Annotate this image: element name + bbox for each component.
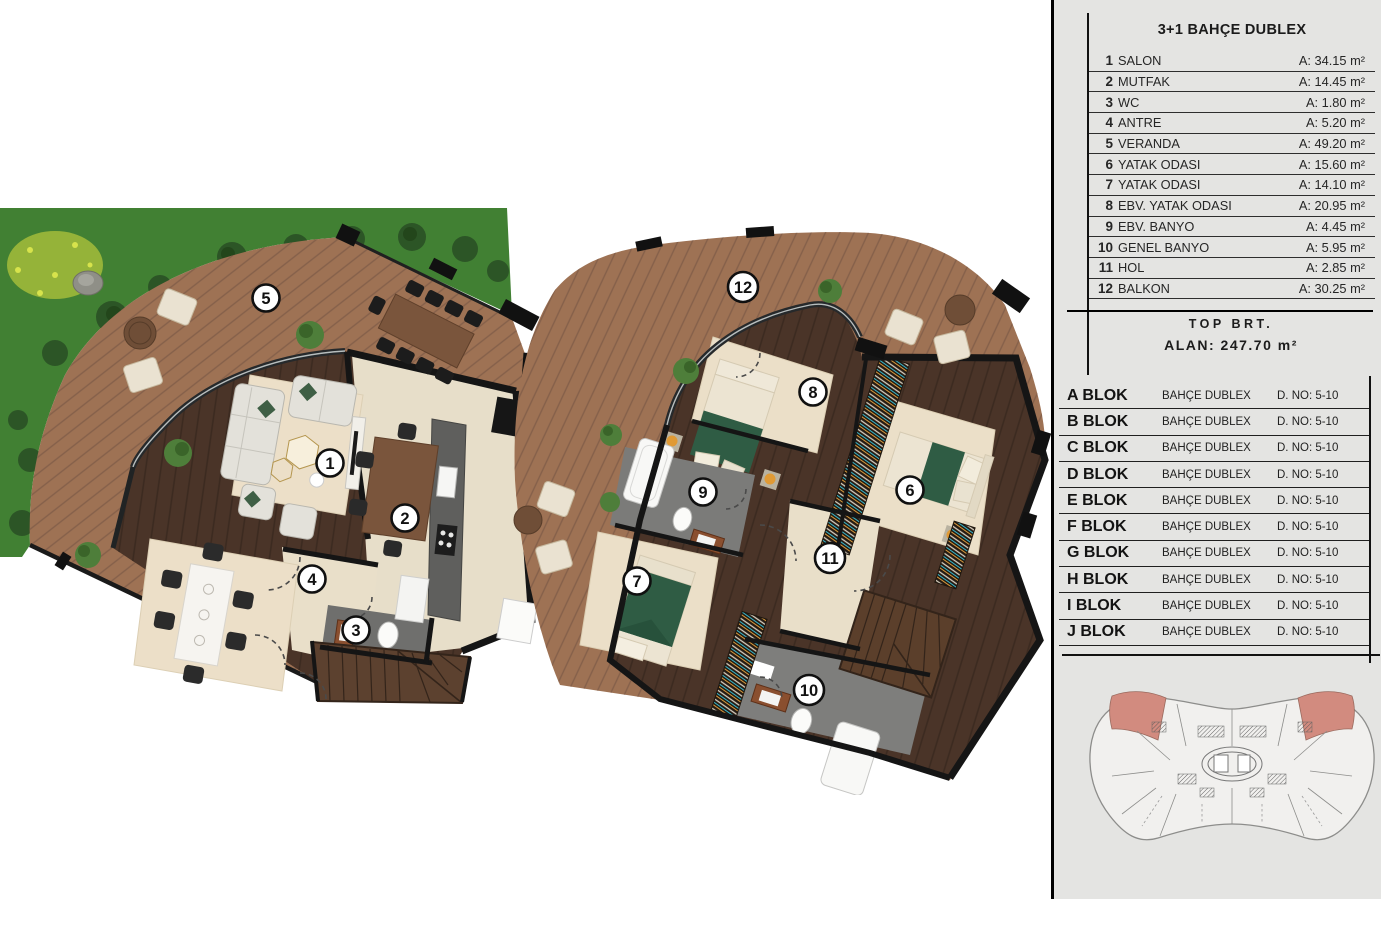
room-area: A: 5.20 m² (1306, 115, 1375, 130)
plan-title: 3+1 BAHÇE DUBLEX (1089, 13, 1375, 51)
legend-room-row: 8EBV. YATAK ODASIA: 20.95 m² (1089, 196, 1375, 217)
svg-text:7: 7 (632, 573, 641, 591)
block-row: A BLOKBAHÇE DUBLEXD. NO: 5-10 (1059, 383, 1369, 409)
site-plan-svg (1082, 676, 1381, 876)
block-row: F BLOKBAHÇE DUBLEXD. NO: 5-10 (1059, 514, 1369, 540)
svg-text:2: 2 (400, 510, 409, 528)
legend-room-row: 11HOLA: 2.85 m² (1089, 258, 1375, 279)
legend-room-row: 12BALKONA: 30.25 m² (1089, 279, 1375, 300)
info-panel: 3+1 BAHÇE DUBLEX 1SALONA: 34.15 m²2MUTFA… (1051, 0, 1381, 899)
svg-text:3: 3 (351, 622, 360, 640)
round-table (514, 506, 542, 534)
block-name: D BLOK (1067, 466, 1162, 484)
block-door-numbers: D. NO: 5-10 (1277, 600, 1338, 612)
room-number: 7 (1089, 177, 1113, 192)
block-door-numbers: D. NO: 5-10 (1277, 469, 1338, 481)
room-marker-12: 12 (728, 272, 758, 302)
room-marker-3: 3 (343, 617, 370, 644)
room-marker-1: 1 (317, 450, 344, 477)
room-name: EBV. YATAK ODASI (1118, 198, 1299, 213)
armchair (279, 503, 318, 540)
block-type: BAHÇE DUBLEX (1162, 574, 1277, 586)
legend-room-row: 1SALONA: 34.15 m² (1089, 51, 1375, 72)
room-area: A: 14.10 m² (1299, 177, 1375, 192)
svg-text:6: 6 (905, 482, 914, 500)
total-area-value: ALAN: 247.70 m² (1087, 337, 1375, 353)
room-marker-8: 8 (800, 379, 827, 406)
block-door-numbers: D. NO: 5-10 (1277, 442, 1338, 454)
block-list-bottom-border (1062, 654, 1380, 656)
block-door-numbers: D. NO: 5-10 (1277, 626, 1338, 638)
room-name: YATAK ODASI (1118, 177, 1299, 192)
block-row: H BLOKBAHÇE DUBLEXD. NO: 5-10 (1059, 567, 1369, 593)
legend-room-rows: 1SALONA: 34.15 m²2MUTFAKA: 14.45 m²3WCA:… (1089, 51, 1375, 299)
svg-text:5: 5 (261, 290, 270, 308)
room-area: A: 1.80 m² (1306, 95, 1375, 110)
room-area: A: 49.20 m² (1299, 136, 1375, 151)
room-number: 5 (1089, 136, 1113, 151)
room-number: 1 (1089, 53, 1113, 68)
block-row: I BLOKBAHÇE DUBLEXD. NO: 5-10 (1059, 593, 1369, 619)
cooktop (434, 524, 457, 556)
total-label: TOP BRT. (1087, 317, 1375, 331)
svg-text:1: 1 (325, 455, 334, 473)
room-number: 12 (1089, 281, 1113, 296)
room-number: 3 (1089, 95, 1113, 110)
block-row: G BLOKBAHÇE DUBLEXD. NO: 5-10 (1059, 541, 1369, 567)
room-marker-9: 9 (690, 479, 717, 506)
room-marker-10: 10 (794, 675, 824, 705)
room-name: GENEL BANYO (1118, 240, 1306, 255)
block-row: B BLOKBAHÇE DUBLEXD. NO: 5-10 (1059, 409, 1369, 435)
block-type: BAHÇE DUBLEX (1162, 442, 1277, 454)
legend-room-row: 10GENEL BANYOA: 5.95 m² (1089, 237, 1375, 258)
svg-text:9: 9 (698, 484, 707, 502)
block-type: BAHÇE DUBLEX (1162, 521, 1277, 533)
block-door-numbers: D. NO: 5-10 (1277, 547, 1338, 559)
legend-room-row: 5VERANDAA: 49.20 m² (1089, 134, 1375, 155)
room-area: A: 14.45 m² (1299, 74, 1375, 89)
room-name: SALON (1118, 53, 1299, 68)
room-marker-11: 11 (815, 543, 845, 573)
block-row: D BLOKBAHÇE DUBLEXD. NO: 5-10 (1059, 462, 1369, 488)
kitchen-island (395, 575, 429, 622)
block-door-numbers: D. NO: 5-10 (1277, 574, 1338, 586)
legend-room-row: 2MUTFAKA: 14.45 m² (1089, 72, 1375, 93)
block-type: BAHÇE DUBLEX (1162, 390, 1277, 402)
svg-text:12: 12 (734, 279, 752, 297)
block-name: C BLOK (1067, 439, 1162, 457)
room-name: HOL (1118, 260, 1306, 275)
block-type: BAHÇE DUBLEX (1162, 495, 1277, 507)
block-name: H BLOK (1067, 571, 1162, 589)
block-door-numbers: D. NO: 5-10 (1277, 495, 1338, 507)
block-list: A BLOKBAHÇE DUBLEXD. NO: 5-10B BLOKBAHÇE… (1059, 383, 1369, 646)
svg-text:8: 8 (808, 384, 817, 402)
block-door-numbers: D. NO: 5-10 (1277, 521, 1338, 533)
sink (436, 466, 457, 498)
room-area: A: 4.45 m² (1306, 219, 1375, 234)
room-area: A: 20.95 m² (1299, 198, 1375, 213)
legend-room-row: 7YATAK ODASIA: 14.10 m² (1089, 175, 1375, 196)
room-name: BALKON (1118, 281, 1299, 296)
room-marker-6: 6 (897, 477, 924, 504)
round-table (945, 295, 975, 325)
legend-room-row: 6YATAK ODASIA: 15.60 m² (1089, 154, 1375, 175)
block-name: F BLOK (1067, 518, 1162, 536)
room-number: 6 (1089, 157, 1113, 172)
room-name: ANTRE (1118, 115, 1306, 130)
room-name: YATAK ODASI (1118, 157, 1299, 172)
room-name: WC (1118, 95, 1306, 110)
total-area-block: TOP BRT. ALAN: 247.70 m² (1087, 317, 1375, 353)
room-number: 9 (1089, 219, 1113, 234)
legend-room-row: 3WCA: 1.80 m² (1089, 92, 1375, 113)
room-number: 8 (1089, 198, 1113, 213)
legend-room-row: 9EBV. BANYOA: 4.45 m² (1089, 217, 1375, 238)
room-name: VERANDA (1118, 136, 1299, 151)
block-name: I BLOK (1067, 597, 1162, 615)
upper-floor-plan: 1286911710 (498, 225, 1058, 795)
room-area: A: 5.95 m² (1306, 240, 1375, 255)
block-name: J BLOK (1067, 623, 1162, 641)
room-area: A: 34.15 m² (1299, 53, 1375, 68)
site-key-plan (1082, 676, 1381, 881)
block-row: J BLOKBAHÇE DUBLEXD. NO: 5-10 (1059, 620, 1369, 646)
svg-text:10: 10 (800, 682, 818, 700)
room-marker-2: 2 (392, 505, 419, 532)
block-row: E BLOKBAHÇE DUBLEXD. NO: 5-10 (1059, 488, 1369, 514)
room-name: EBV. BANYO (1118, 219, 1306, 234)
room-number: 10 (1089, 240, 1113, 255)
room-number: 4 (1089, 115, 1113, 130)
legend-room-row: 4ANTREA: 5.20 m² (1089, 113, 1375, 134)
svg-text:4: 4 (307, 571, 317, 589)
room-marker-5: 5 (253, 285, 280, 312)
total-separator (1067, 310, 1373, 312)
block-door-numbers: D. NO: 5-10 (1277, 390, 1338, 402)
block-name: G BLOK (1067, 544, 1162, 562)
block-name: B BLOK (1067, 413, 1162, 431)
block-type: BAHÇE DUBLEX (1162, 416, 1277, 428)
svg-text:11: 11 (821, 550, 838, 568)
room-area: A: 15.60 m² (1299, 157, 1375, 172)
room-marker-7: 7 (624, 568, 651, 595)
room-number: 2 (1089, 74, 1113, 89)
block-name: E BLOK (1067, 492, 1162, 510)
block-list-right-border (1369, 376, 1371, 663)
room-area: A: 2.85 m² (1306, 260, 1375, 275)
block-door-numbers: D. NO: 5-10 (1277, 416, 1338, 428)
block-type: BAHÇE DUBLEX (1162, 547, 1277, 559)
room-name: MUTFAK (1118, 74, 1299, 89)
block-type: BAHÇE DUBLEX (1162, 626, 1277, 638)
block-name: A BLOK (1067, 387, 1162, 405)
block-row: C BLOKBAHÇE DUBLEXD. NO: 5-10 (1059, 436, 1369, 462)
room-marker-4: 4 (299, 566, 326, 593)
block-type: BAHÇE DUBLEX (1162, 469, 1277, 481)
block-type: BAHÇE DUBLEX (1162, 600, 1277, 612)
room-number: 11 (1089, 260, 1113, 275)
ground-floor-plan: 51243 (0, 205, 548, 705)
room-area: A: 30.25 m² (1299, 281, 1375, 296)
